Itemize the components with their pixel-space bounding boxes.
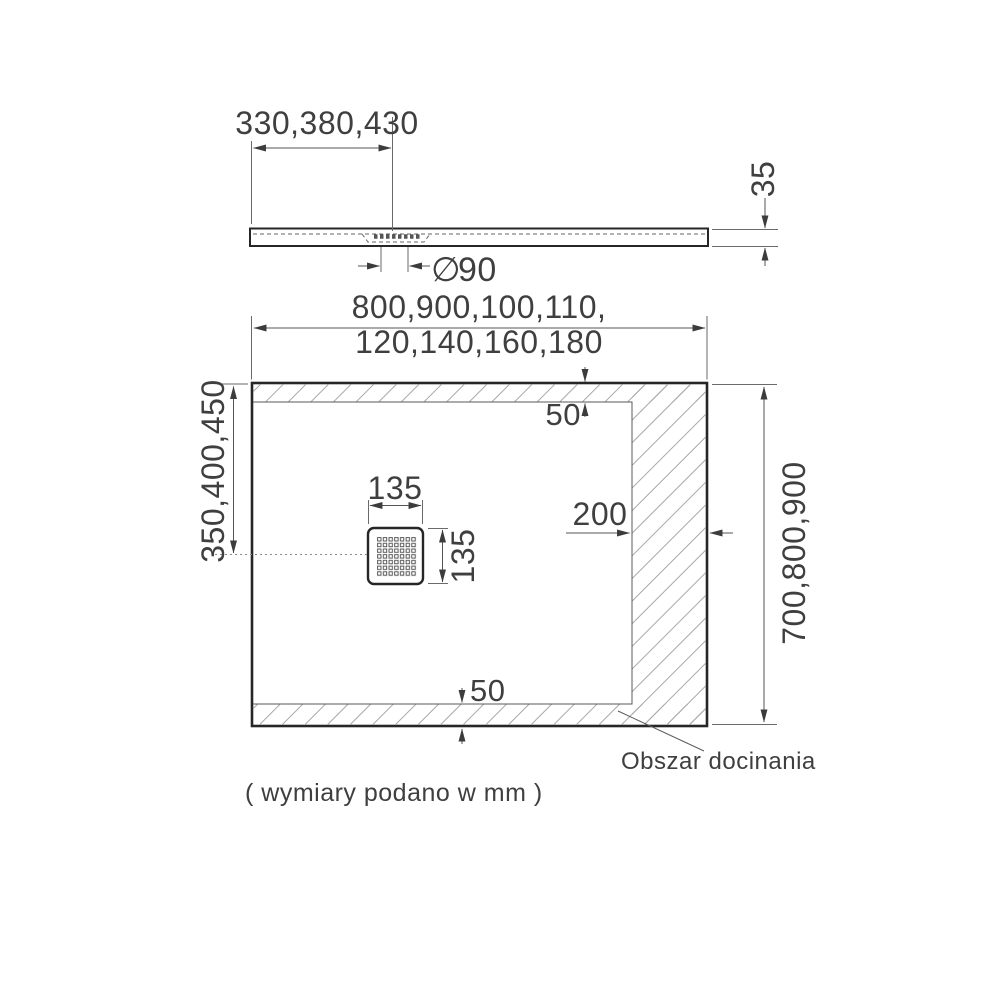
tray-profile — [250, 229, 708, 247]
dim-label-drain-offset-width: 330,380,430 — [235, 105, 418, 141]
dim-drain-offset-length: 350,400,450 — [195, 379, 248, 562]
trim-area-right — [632, 384, 706, 724]
dim-label-tray-width-line1: 800,900,100,110, — [352, 289, 607, 325]
technical-drawing-shower-tray: 330,380,430 ∅ 90 35 — [0, 0, 1000, 1000]
dim-label-tray-width-line2: 120,140,160,180 — [355, 324, 603, 360]
dim-drain-offset-width: 330,380,430 — [235, 105, 418, 231]
dim-label-thickness: 35 — [745, 161, 781, 198]
trim-area-label: Obszar docinania — [621, 748, 816, 775]
dim-drain-diameter: ∅ 90 — [358, 247, 497, 289]
dim-thickness: 35 — [712, 161, 781, 266]
dim-label-margin-right: 200 — [573, 496, 628, 532]
side-view: 330,380,430 ∅ 90 35 — [235, 105, 781, 289]
dim-tray-width: 800,900,100,110, 120,140,160,180 — [252, 289, 708, 380]
dim-label-drain-length: 135 — [445, 529, 481, 584]
plan-view: 135 135 350,400,450 800,900,100,110, 120… — [195, 289, 816, 775]
dim-label-drain-offset-length: 350,400,450 — [195, 379, 231, 562]
dim-label-drain-width: 135 — [368, 470, 423, 506]
dim-label-tray-length: 700,800,900 — [776, 461, 812, 644]
dim-margin-top: 50 — [546, 367, 585, 432]
dim-label-margin-top: 50 — [546, 397, 581, 432]
dim-tray-length: 700,800,900 — [712, 385, 812, 725]
dim-label-margin-bottom: 50 — [470, 673, 505, 708]
drawing-canvas: 330,380,430 ∅ 90 35 — [0, 0, 1000, 1000]
diameter-symbol: ∅ — [431, 251, 461, 289]
units-caption: ( wymiary podano w mm ) — [245, 779, 543, 807]
dim-label-drain-diameter: 90 — [458, 251, 497, 289]
drain-grate — [377, 537, 417, 577]
